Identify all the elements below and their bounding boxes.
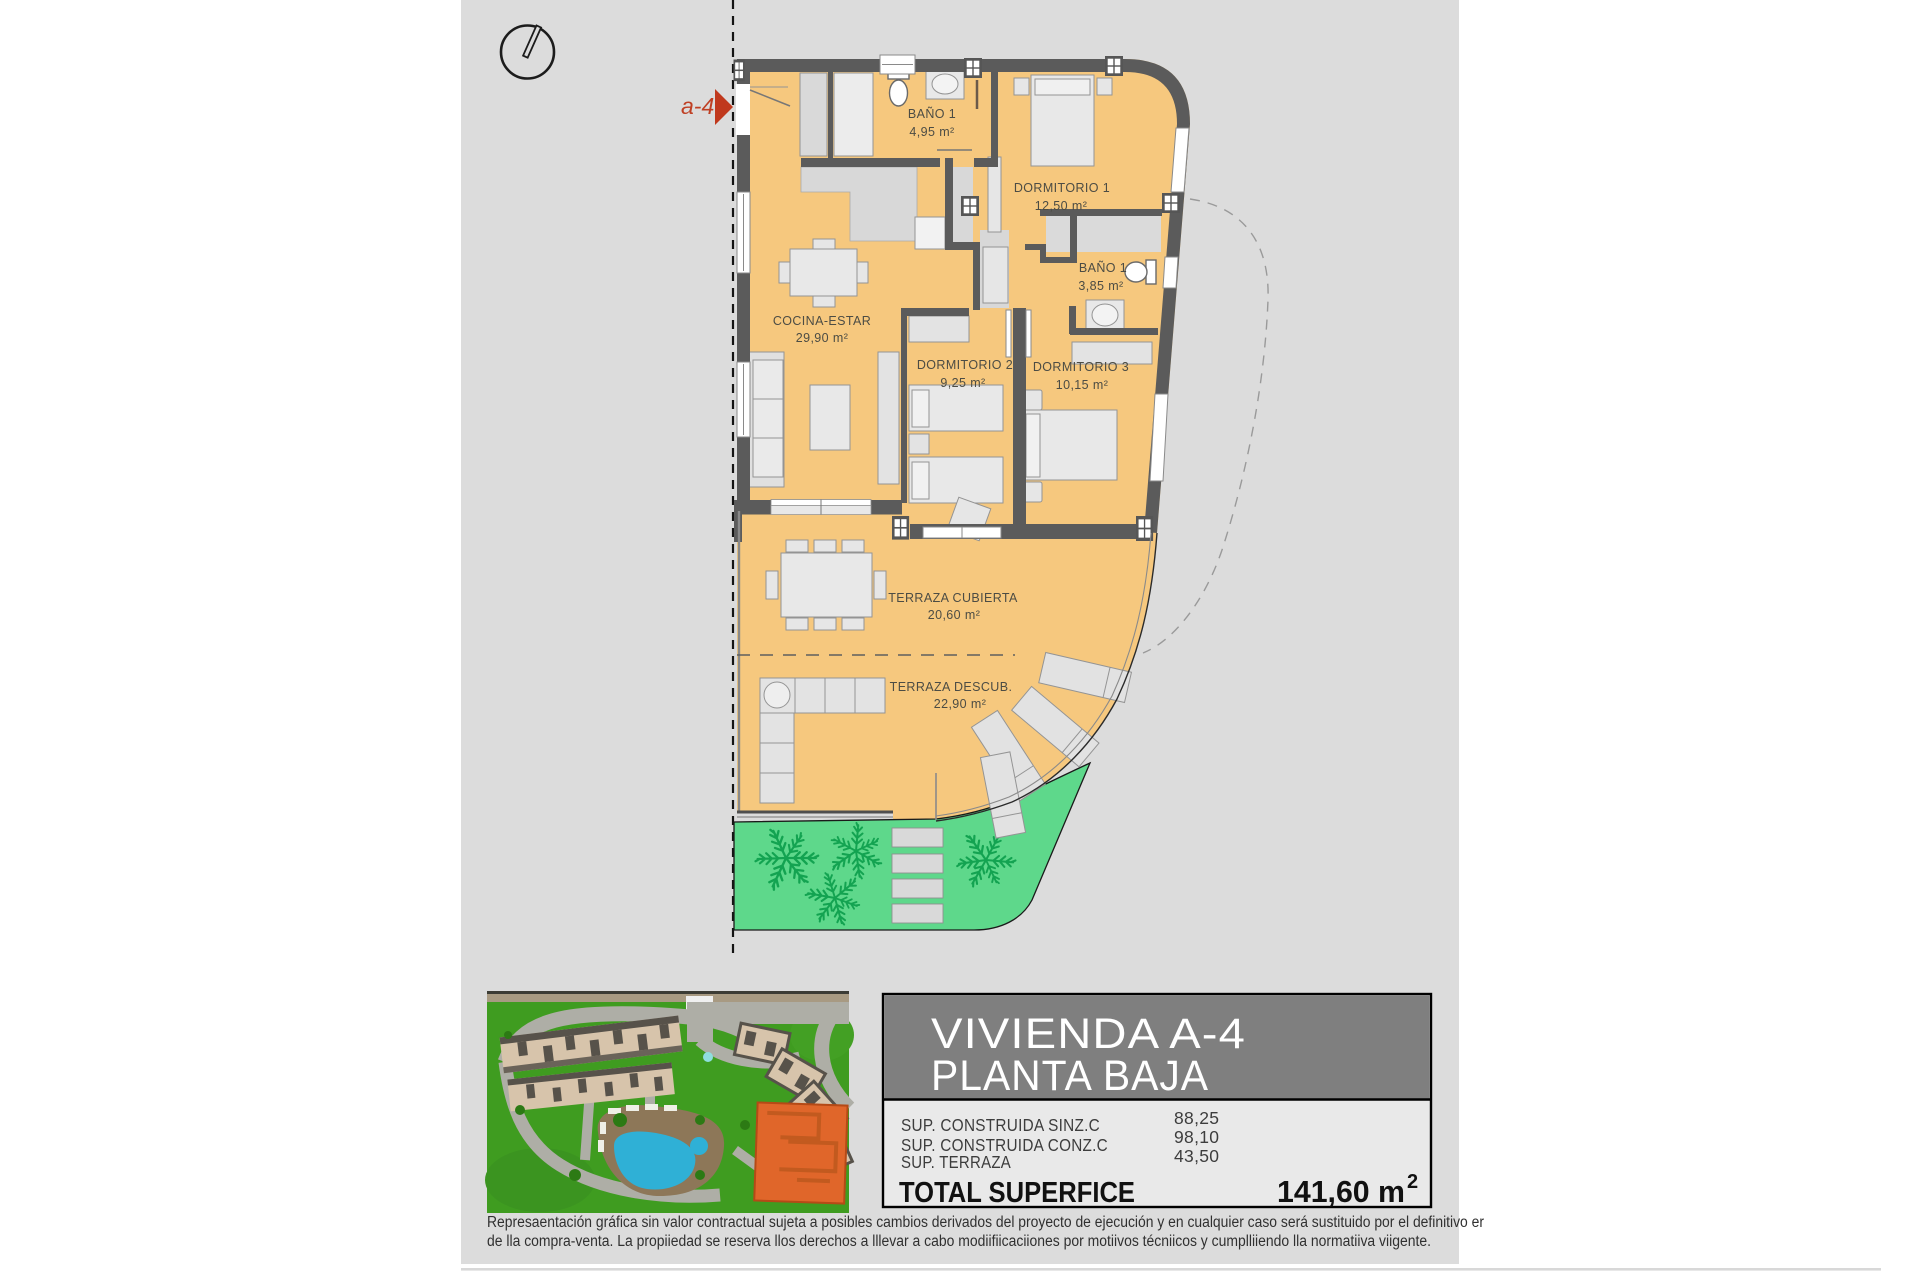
svg-text:BAÑO 1: BAÑO 1 [1079, 261, 1127, 275]
svg-text:98,10: 98,10 [1174, 1127, 1219, 1147]
svg-text:DORMITORIO 2: DORMITORIO 2 [917, 358, 1013, 372]
svg-text:88,25: 88,25 [1174, 1108, 1219, 1128]
svg-text:a-4: a-4 [681, 93, 714, 119]
svg-text:141,60 m: 141,60 m [1277, 1174, 1405, 1209]
svg-text:SUP. CONSTRUIDA SINZ.C: SUP. CONSTRUIDA SINZ.C [901, 1115, 1100, 1135]
svg-text:4,95 m²: 4,95 m² [909, 125, 954, 139]
svg-text:BAÑO 1: BAÑO 1 [908, 107, 956, 121]
svg-text:10,15 m²: 10,15 m² [1056, 378, 1109, 392]
svg-text:DORMITORIO 3: DORMITORIO 3 [1033, 360, 1129, 374]
svg-text:SUP. TERRAZA: SUP. TERRAZA [901, 1152, 1011, 1172]
svg-text:43,50: 43,50 [1174, 1146, 1219, 1166]
svg-text:Represaentación gráfica sin va: Represaentación gráfica sin valor contra… [487, 1214, 1484, 1231]
svg-text:2: 2 [1407, 1171, 1418, 1193]
svg-text:COCINA-ESTAR: COCINA-ESTAR [773, 314, 871, 328]
svg-text:VIVIENDA A-4: VIVIENDA A-4 [931, 1010, 1246, 1058]
svg-text:TERRAZA CUBIERTA: TERRAZA CUBIERTA [888, 591, 1018, 605]
svg-text:3,85 m²: 3,85 m² [1078, 279, 1123, 293]
svg-text:DORMITORIO 1: DORMITORIO 1 [1014, 181, 1110, 195]
svg-text:de lla compra-venta. La propii: de lla compra-venta. La propiiedad se re… [487, 1233, 1431, 1250]
svg-text:TERRAZA DESCUB.: TERRAZA DESCUB. [890, 680, 1013, 694]
svg-text:20,60 m²: 20,60 m² [928, 608, 981, 622]
svg-text:TOTAL SUPERFICE: TOTAL SUPERFICE [899, 1177, 1135, 1209]
svg-text:PLANTA BAJA: PLANTA BAJA [931, 1052, 1209, 1100]
svg-text:9,25 m²: 9,25 m² [940, 376, 985, 390]
svg-text:22,90 m²: 22,90 m² [934, 697, 987, 711]
svg-text:29,90 m²: 29,90 m² [796, 331, 849, 345]
svg-text:12,50 m²: 12,50 m² [1035, 199, 1088, 213]
